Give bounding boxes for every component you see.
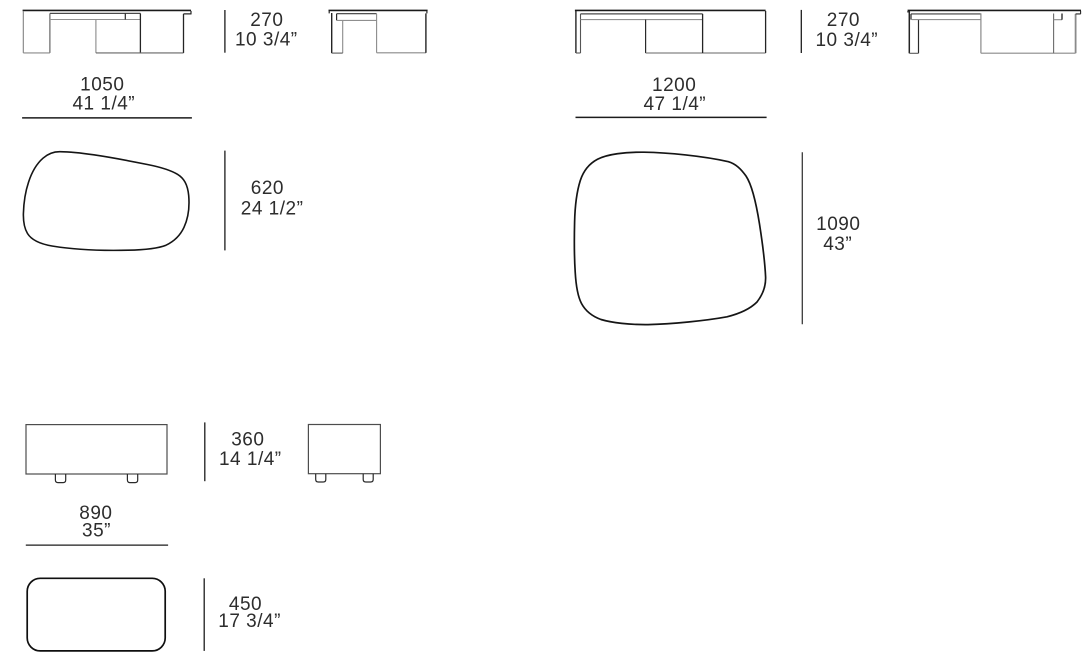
svg-text:17 3/4”: 17 3/4”: [218, 611, 281, 632]
svg-text:1050: 1050: [80, 74, 124, 95]
svg-text:10 3/4”: 10 3/4”: [815, 30, 878, 51]
svg-text:10 3/4”: 10 3/4”: [235, 30, 298, 51]
svg-text:35”: 35”: [82, 521, 111, 542]
svg-text:270: 270: [827, 10, 860, 31]
svg-text:270: 270: [250, 10, 283, 31]
svg-text:1090: 1090: [816, 214, 860, 235]
svg-text:24 1/2”: 24 1/2”: [241, 199, 304, 220]
svg-text:620: 620: [251, 178, 284, 199]
svg-text:43”: 43”: [823, 234, 852, 255]
svg-text:360: 360: [231, 429, 264, 450]
svg-text:47 1/4”: 47 1/4”: [643, 94, 706, 115]
svg-text:41 1/4”: 41 1/4”: [72, 93, 135, 114]
svg-text:14 1/4”: 14 1/4”: [219, 449, 282, 470]
svg-text:1200: 1200: [652, 75, 696, 96]
